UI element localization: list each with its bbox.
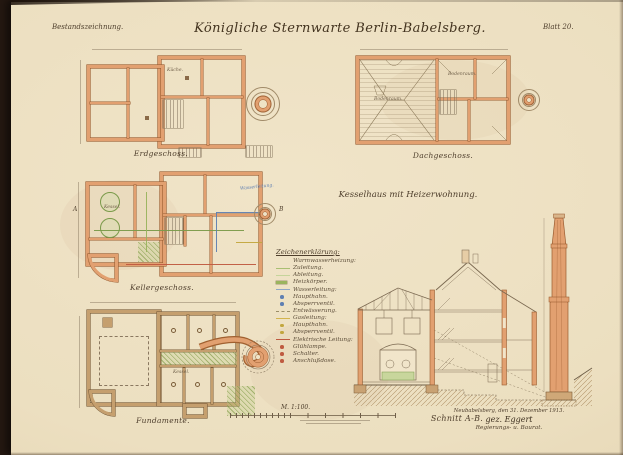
legend-entry-label: Wasserleitung: [293,287,337,293]
room-label: Küche. [167,68,183,73]
wall-segment [474,59,476,99]
signature-title: Regierungs- u. Baurat. [448,425,570,431]
hatched-area [138,242,160,262]
erdgeschoss-caption: Erdgeschoss. [121,149,201,158]
bay-wall [88,254,118,282]
legend-entry-label: Elektrische Leitung: [293,337,353,343]
scale-bar [230,413,396,418]
legend-entry-label: Haupthahn. [293,322,328,328]
print-note-line [306,423,361,424]
room-label: Bodenraum. [374,97,402,102]
legend-entry-label: Gasleitung: [293,315,327,321]
staircase [163,100,183,128]
legend-swatch-dot [276,359,291,363]
page-edge-right [619,0,623,455]
wall-segment [468,100,470,141]
page-edge-top [11,0,623,2]
chimney-flue [145,116,149,120]
legend-swatch-dot [276,352,291,356]
fundamente-caption: Fundamente. [123,416,203,425]
signature-name: gez. Eggert [448,415,570,424]
wall-segment [207,98,209,145]
legend-swatch-line [276,268,291,269]
wall-segment [161,96,243,98]
room-label: Kessel. [173,370,189,375]
wall-segment [436,59,438,141]
legend-swatch-line [276,275,291,276]
electric-line [126,264,256,265]
page-title: Königliche Sternwarte Berlin-Babelsberg. [180,21,500,36]
legend-swatch-line [276,289,291,290]
dimension-line [78,182,79,278]
duct-outline [99,336,149,386]
room-label: Bodenraum. [448,72,476,77]
wall-segment [187,315,189,350]
scale-ticks-coarse [290,413,396,418]
staircase [165,218,183,244]
legend-swatch-line [276,339,291,340]
scale-label: M. 1:100. [281,404,310,411]
boiler [100,218,120,238]
legend-entry-label: Anschlußdose. [293,358,336,364]
wall-segment [184,216,186,246]
dimension-line [80,60,81,144]
legend-entry-label: Schalter. [293,351,319,357]
room-label: Kessel. [104,205,120,210]
plan-erdgeschoss: Küche. [87,56,245,148]
staircase [440,90,456,114]
wall-segment [134,185,136,240]
legend-swatch-dot [276,295,291,299]
sheet-number: Blatt 20. [543,23,574,31]
dimension-line [79,316,80,408]
legend-entry-label: Ableitung. [293,272,323,278]
signature-block: Neubabelsberg, den 31. Dezember 1913. ge… [448,408,570,431]
exterior-stair [246,146,272,157]
wall-segment [204,175,206,215]
legend-entry-label: Heizkörper. [293,279,327,285]
legend-entry-label: Entwässerung. [293,308,337,314]
chimney-section-circle [246,87,280,121]
print-note-line [300,420,370,421]
wall-segment [89,238,163,240]
legend-swatch-dot [276,302,291,306]
wall-segment [90,102,130,104]
legend-entry-label: Absperrventil. [293,329,335,335]
gas-pipe [236,242,262,243]
legend-entry-label: Warmwasserheizung: [293,258,356,264]
heating-pipe [94,230,244,231]
scanned-drawing-sheet: Bestandszeichnung. Königliche Sternwarte… [0,0,623,455]
dachgeschoss-caption: Dachgeschoss. [403,151,483,160]
legend-entry-label: Absperrventil. [293,301,335,307]
signature-place-date: Neubabelsberg, den 31. Dezember 1913. [448,408,570,414]
heating-pipe [146,192,147,252]
legend-entry-label: Haupthahn. [293,294,328,300]
section-marker-b: B [279,206,283,213]
section-marker-a: A [73,206,77,213]
wall-segment [201,59,203,97]
foundation-pad [103,318,112,327]
legend-swatch-box [276,281,291,285]
legend-entry-label: Glühlampe. [293,344,327,350]
chimney-flue [185,76,189,80]
legend-swatch-dashed [276,311,291,312]
legend-swatch-dot [276,324,291,328]
drawing-subtitle: Kesselhaus mit Heizerwohnung. [330,190,486,200]
water-pipe [216,212,217,252]
kellergeschoss-caption: Kellergeschoss. [122,283,202,292]
dimension-line [360,49,508,50]
anchor-point [171,382,176,387]
dimension-line [92,49,242,50]
scale-ticks-fine [230,413,290,418]
legend-swatch-dot [276,331,291,335]
legend-swatch-line [276,318,291,319]
section-drawing [352,210,592,410]
plan-kellergeschoss: Kessel. [86,172,262,282]
hatched-area [227,386,255,416]
doc-type-label: Bestandszeichnung. [52,23,123,31]
chimney-section-circle [518,89,540,111]
chimney-section-circle [254,203,276,225]
legend-entry-label: Zuleitung. [293,265,323,271]
anchor-point [171,328,176,333]
plan-dachgeschoss: Bodenraum. Bodenraum. [356,56,510,144]
dimension-line [90,302,236,303]
legend-swatch-dot [276,345,291,349]
